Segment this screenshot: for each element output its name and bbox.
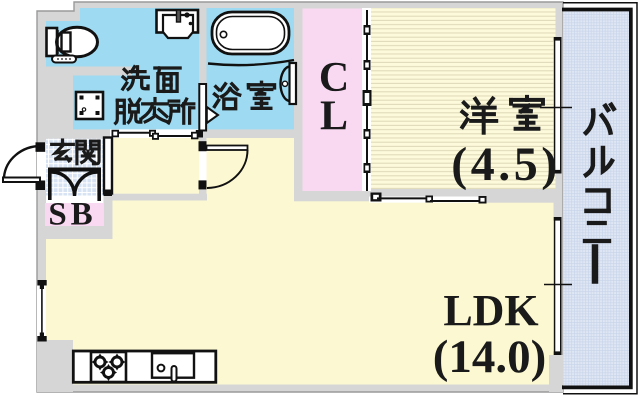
svg-text:(4.5): (4.5) [451, 138, 560, 191]
svg-text:(14.0): (14.0) [433, 331, 547, 383]
svg-text:SB: SB [48, 197, 96, 233]
svg-text:L: L [320, 94, 348, 140]
svg-text:LDK: LDK [443, 286, 538, 335]
